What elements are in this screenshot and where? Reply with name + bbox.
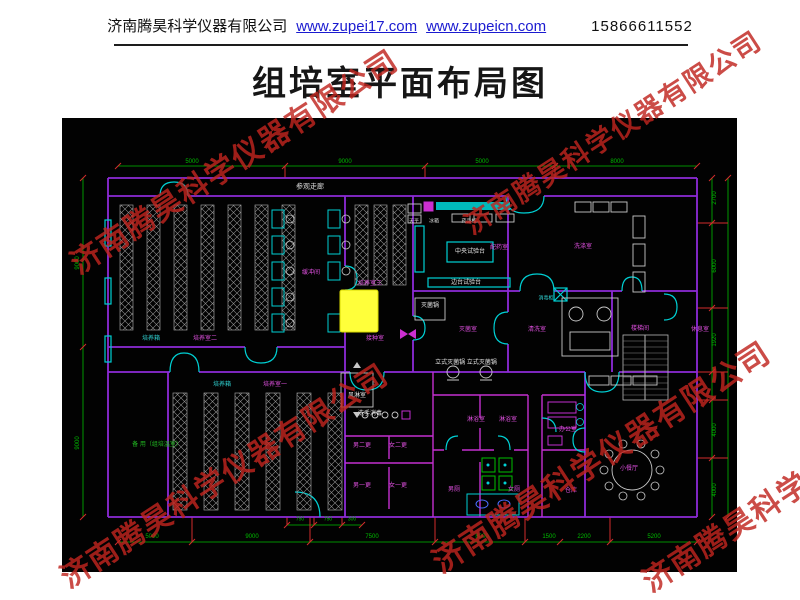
floor-plan-linework [62, 118, 737, 572]
room-label: 女一更 [389, 483, 407, 489]
room-label: 仓库 [565, 488, 577, 494]
dim-label: 2200 [577, 534, 590, 540]
floor-plan: 参观走廊缓冲间培养室三接种室培养箱培养室二培养箱培养室一风淋室洗手消毒男二更女二… [62, 118, 737, 572]
dim-label: 9000 [75, 256, 81, 269]
header-divider [114, 44, 688, 46]
room-label: 接种室 [366, 336, 384, 342]
room-label: 配药室 [490, 245, 508, 251]
room-label: 休息室 [691, 327, 709, 333]
room-label: 灭菌室 [459, 327, 477, 333]
room-label: 办公室 [559, 427, 577, 433]
equip-label: 消毒柜 [538, 297, 553, 302]
dim-label: 1920 [712, 333, 718, 346]
room-label: 男厕 [448, 487, 460, 493]
dim-label: 5000 [185, 159, 198, 165]
lab-benches [415, 226, 567, 301]
equip-label: 边台试验台 [451, 280, 481, 286]
equip-label: 药品柜 [461, 220, 476, 225]
equip-label: 中央试验台 [455, 249, 485, 255]
dim-label: 1500 [542, 534, 555, 540]
room-label: 参观走廊 [296, 184, 324, 191]
room-label: 淋浴室 [467, 417, 485, 423]
page-header: 济南腾昊科学仪器有限公司 www.zupei17.com www.zupeicn… [0, 15, 800, 36]
dim-label: 6000 [712, 259, 718, 272]
dim-label: 5200 [647, 534, 660, 540]
dim-label: 750 [296, 518, 304, 523]
dim-label: 9000 [75, 436, 81, 449]
dim-label: 4000 [712, 483, 718, 496]
room-label: 女厕 [508, 487, 520, 493]
room-label: 培养室一 [263, 382, 287, 388]
company-name: 济南腾昊科学仪器有限公司 [107, 15, 287, 36]
equip-label: 灭菌锅 [421, 303, 439, 309]
room-label: 缓冲间 [302, 270, 320, 276]
dim-label: 750 [324, 518, 332, 523]
dim-label: 4000 [712, 423, 718, 436]
dim-label: 5000 [145, 534, 158, 540]
office-desks [402, 202, 584, 445]
air-shower-arrows [353, 362, 361, 418]
dim-label: 8000 [610, 159, 623, 165]
dim-label: 7500 [365, 534, 378, 540]
room-label: 女二更 [389, 443, 407, 449]
dim-label: 9000 [245, 534, 258, 540]
equip-label: 培养箱 [213, 382, 231, 388]
door-symbols [105, 182, 677, 517]
equip-label: 培养箱 [142, 336, 160, 342]
equip-label: 立式灭菌锅 立式灭菌锅 [435, 360, 497, 366]
room-label: 洗涤室 [574, 244, 592, 250]
equip-label: 洗手消毒 [358, 411, 382, 417]
room-label: 培养室二 [193, 336, 217, 342]
culture-racks [120, 205, 406, 510]
dim-label: 300 [348, 518, 356, 523]
room-label: 备 用（组培温室） [132, 442, 182, 448]
room-label: 淋浴室 [499, 417, 517, 423]
room-label: 小餐厅 [620, 466, 638, 472]
dim-label: 2700 [712, 191, 718, 204]
room-label: 培养室三 [358, 281, 382, 287]
toilet-stalls [482, 458, 512, 490]
room-label: 男二更 [353, 443, 371, 449]
page: { "header": { "company": "济南腾昊科学仪器有限公司",… [0, 0, 800, 600]
room-label: 清洗室 [528, 327, 546, 333]
link-zupeicn[interactable]: www.zupeicn.com [426, 18, 546, 35]
page-title: 组培室平面布局图 [0, 56, 800, 105]
label-plate [436, 202, 510, 210]
dim-label: 5000 [475, 159, 488, 165]
dim-label: 9000 [338, 159, 351, 165]
stairs [623, 335, 668, 400]
room-label: 男一更 [353, 483, 371, 489]
phone-number: 15866611552 [591, 18, 693, 35]
room-label: 楼梯间 [631, 326, 649, 332]
equip-label: 风淋室 [348, 393, 366, 399]
equip-label: 天平 [409, 220, 419, 225]
link-zupei17[interactable]: www.zupei17.com [296, 18, 417, 35]
yellow-highlight [340, 290, 378, 332]
ceiling-fan-symbol [400, 329, 416, 339]
equip-label: 冰箱 [429, 220, 439, 225]
dim-label: 8000 [475, 534, 488, 540]
